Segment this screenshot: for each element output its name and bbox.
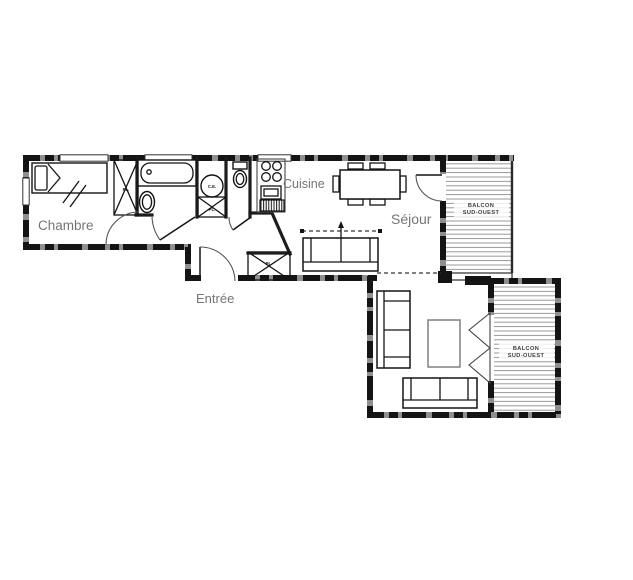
- balcony-top-deck: [446, 158, 512, 280]
- chair: [370, 199, 385, 205]
- dining-table: [333, 163, 406, 205]
- chambre-side-window: [23, 178, 29, 205]
- bathtub: [138, 160, 196, 186]
- wc-door: [229, 217, 251, 230]
- chair: [348, 199, 363, 205]
- balcony-door: [416, 175, 442, 201]
- burner-icon: [262, 162, 271, 171]
- chambre-door: [106, 212, 139, 245]
- chambre-closet-label: PL.: [123, 187, 130, 192]
- chambre-closet: PL.: [114, 160, 138, 215]
- toilet: [233, 162, 247, 188]
- water-heater-label: C.E.: [208, 184, 216, 189]
- entry-door: [200, 247, 235, 281]
- entree-label: Entrée: [196, 291, 234, 306]
- bed: [32, 163, 107, 193]
- bathroom-door: [152, 217, 195, 240]
- cuisine-label: Cuisine: [283, 177, 325, 191]
- sofa-bed: [300, 221, 382, 271]
- coffee-table: [428, 320, 460, 367]
- hall-closet-label: PL.: [209, 207, 216, 212]
- angled-wall: [272, 213, 290, 254]
- burner-icon: [273, 162, 282, 171]
- burner-icon: [273, 173, 282, 182]
- chair: [400, 176, 406, 192]
- burner-icon: [262, 173, 271, 182]
- entree-closet-label: PL.: [266, 261, 273, 266]
- sliding-door-panels: [469, 313, 490, 383]
- bathroom-sink: [140, 192, 155, 213]
- hall-closet: PL.: [198, 197, 226, 217]
- water-heater: C.E.: [201, 175, 223, 197]
- floor-plan-drawing: PL. C.E. PL.: [0, 0, 633, 580]
- sofa-horizontal: [403, 378, 477, 408]
- floor-plan-page: PL. C.E. PL.: [0, 0, 633, 580]
- wall-junction-block-2: [465, 276, 491, 285]
- chair: [370, 163, 385, 169]
- svg-text:SUD-OUEST: SUD-OUEST: [508, 353, 545, 359]
- svg-text:BALCON: BALCON: [468, 203, 494, 209]
- sofa-vertical: [377, 291, 410, 368]
- chair: [333, 176, 339, 192]
- svg-text:BALCON: BALCON: [513, 346, 539, 352]
- chambre-window: [60, 155, 108, 161]
- balcony-bottom-label: BALCON SUD-OUEST: [499, 343, 554, 360]
- chair: [348, 163, 363, 169]
- svg-text:SUD-OUEST: SUD-OUEST: [463, 210, 500, 216]
- sejour-label: Séjour: [391, 211, 432, 227]
- chambre-label: Chambre: [38, 218, 94, 233]
- balcony-top-label: BALCON SUD-OUEST: [454, 200, 509, 217]
- kitchen-window: [258, 155, 291, 161]
- kitchen-grill: [260, 200, 284, 211]
- kitchen-unit: [257, 159, 285, 212]
